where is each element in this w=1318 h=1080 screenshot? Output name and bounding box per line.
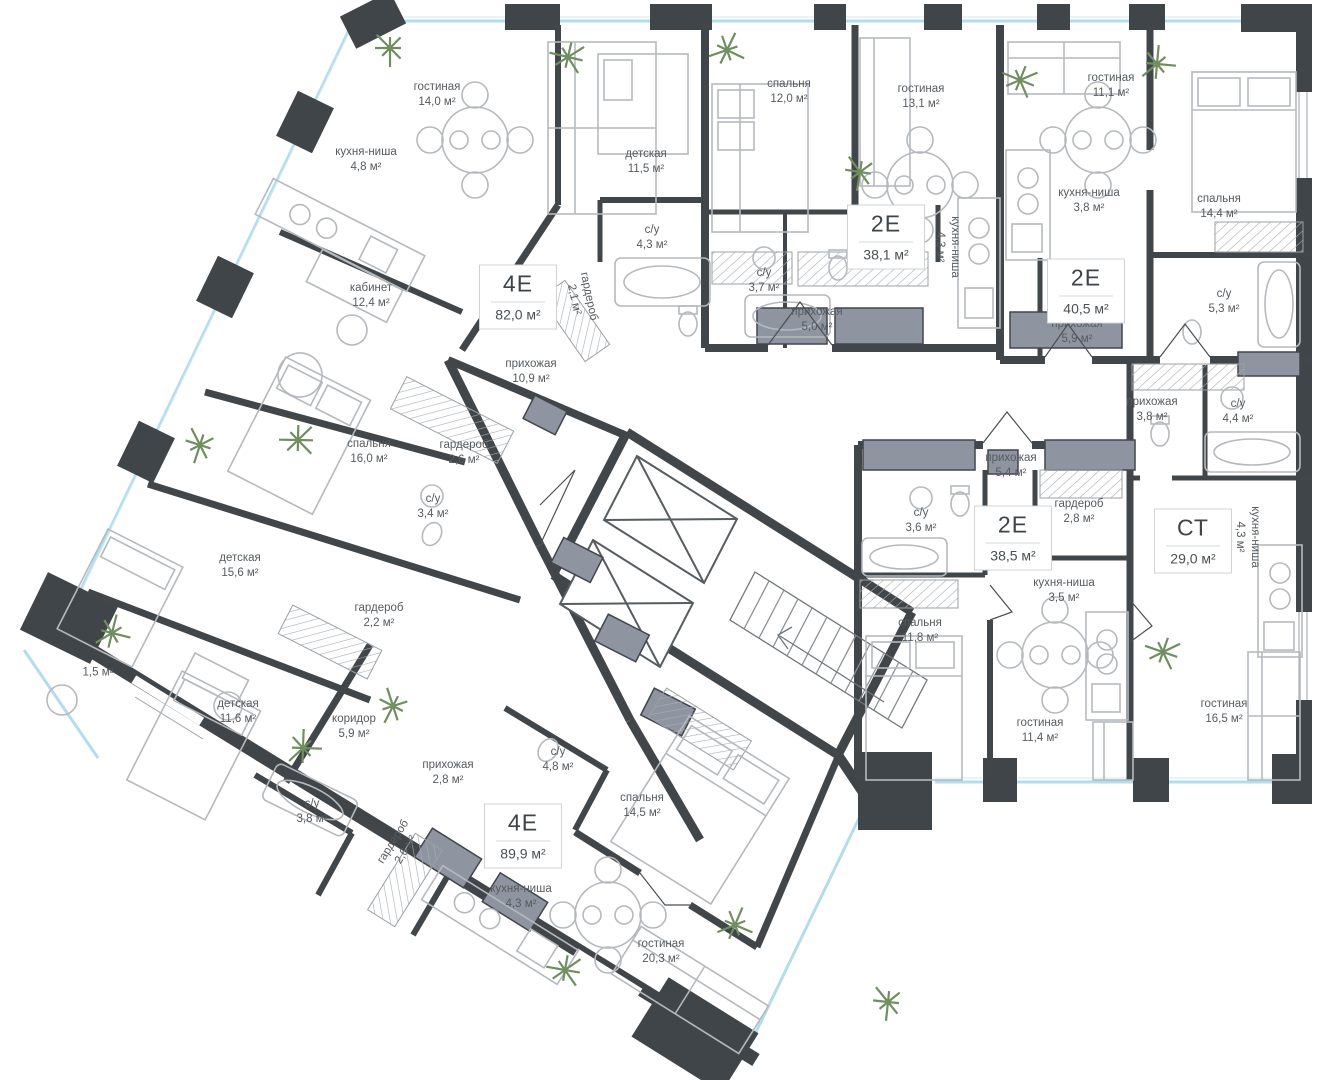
dining-table-icon [417,82,533,198]
apartment-type: 2Е [979,512,1047,539]
badge-divider [986,543,1040,544]
chair-icon [337,315,367,345]
apartment-badge[interactable]: 2Е40,5 м² [1047,259,1125,324]
plant-icon [873,987,900,1021]
sink-icon [910,487,932,509]
dining-table-icon [1040,82,1156,198]
apartment-area: 40,5 м² [1052,301,1120,317]
apartment-badge[interactable]: 4Е89,9 м² [484,804,562,869]
floor-plan: гостиная14,0 м²кухня-ниша4,8 м²кабинет12… [0,0,1318,1080]
apartment-area: 38,5 м² [979,548,1047,564]
apartment-badge[interactable]: 2Е38,5 м² [974,506,1052,571]
apartment-badge[interactable]: СТ29,0 м² [1154,509,1232,574]
chair-icon [47,685,77,715]
bathtub-icon [862,538,947,576]
bathtub-icon [1258,262,1300,347]
floor-plan-drawing [0,0,1318,1080]
apartment-type: 4Е [489,810,557,837]
desk-icon [306,249,403,322]
apartment-type: 2Е [1052,265,1120,292]
apartment-area: 38,1 м² [852,247,920,263]
apartment-type: 4Е [484,271,552,298]
sofa-icon [860,38,910,186]
badge-divider [491,302,545,303]
plant-icon [186,428,214,463]
bed-icon [1192,72,1296,212]
badge-divider [859,242,913,243]
apartment-area: 89,9 м² [489,846,557,862]
bed-icon [598,54,688,154]
bathtub-icon [615,258,710,306]
plant-icon [375,35,401,67]
plant-icon [709,33,744,64]
plant-icon [279,425,313,454]
badge-divider [496,841,550,842]
toilet-icon [951,486,969,516]
apartment-area: 29,0 м² [1159,551,1227,567]
toilet-icon [1183,320,1201,344]
bathtub-icon [1205,432,1300,472]
plant-icon [550,42,585,73]
kitchen-counter-icon [958,198,1000,328]
apartment-badge[interactable]: 4Е82,0 м² [479,265,557,330]
badge-divider [1059,296,1113,297]
plant-icon [1145,638,1180,669]
toilet-icon [419,519,446,549]
sofa-icon [548,42,656,214]
plant-icon [380,688,408,723]
sink-icon [421,485,443,507]
apartment-area: 82,0 м² [484,307,552,323]
dining-table-icon [997,597,1113,713]
badge-divider [1166,546,1220,547]
kitchen-counter-icon [1006,150,1050,260]
apartment-type: СТ [1159,515,1227,542]
kitchen-counter-icon [1258,545,1302,657]
toilet-icon [1151,416,1169,446]
toilet-icon [679,306,697,336]
apartment-badge[interactable]: 2Е38,1 м² [847,205,925,270]
apartment-type: 2Е [852,211,920,238]
